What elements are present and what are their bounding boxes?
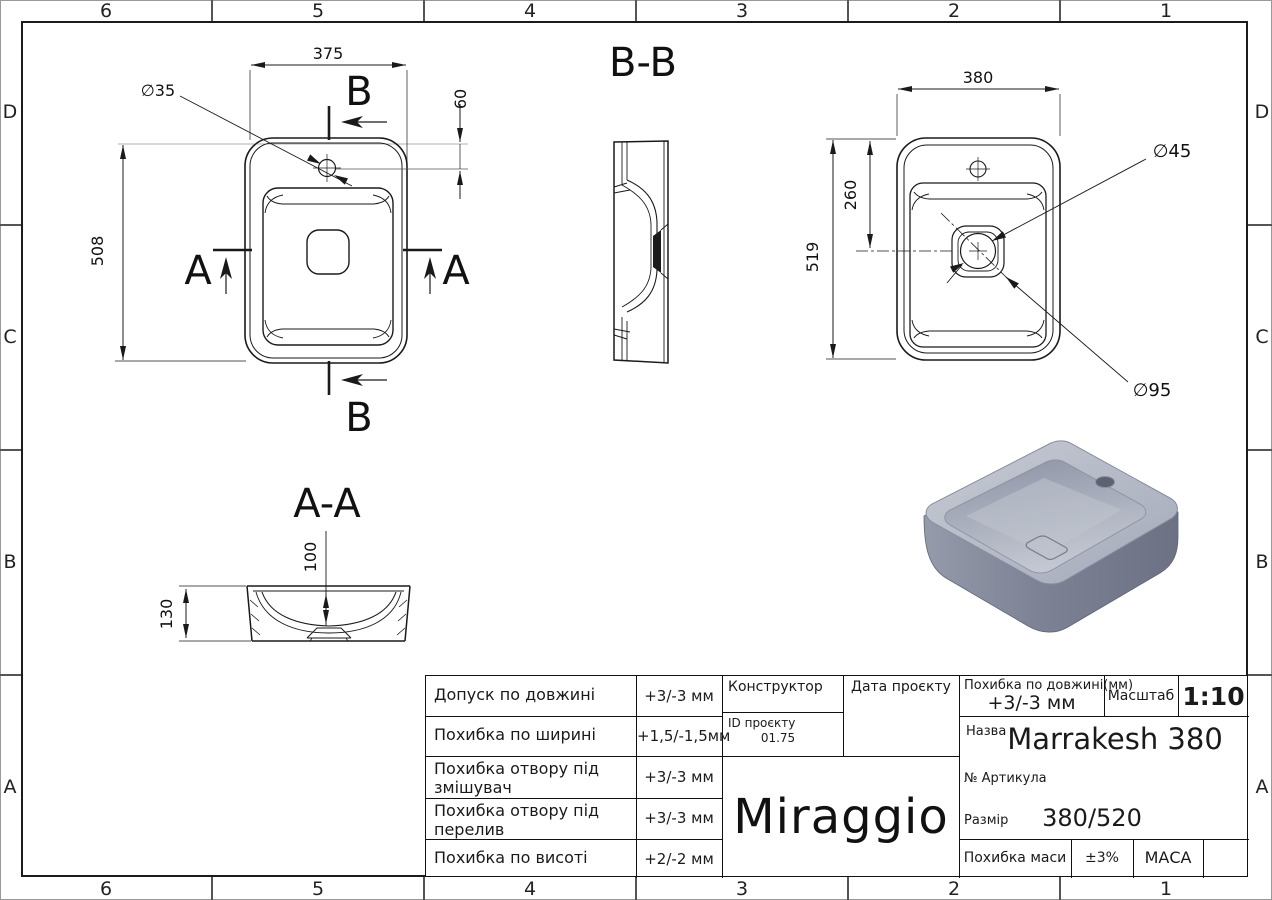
tb-line: [426, 839, 723, 840]
section-letter-b-top: B: [345, 69, 372, 115]
plan-outer-edge-inner: [250, 143, 402, 358]
tolerance-value: +3/-3 мм: [637, 768, 721, 786]
article-label: № Артикула: [964, 771, 1047, 786]
mass-label: МАСА: [1133, 848, 1203, 867]
render-faucet-hole: [1096, 477, 1115, 488]
mass-tolerance-value: ±3%: [1071, 850, 1133, 866]
section-letter-a-right: A: [442, 248, 470, 294]
tolerance-value: +2/-2 мм: [637, 850, 721, 868]
section-aa-view: [179, 531, 410, 641]
section-bb-view: [614, 141, 668, 363]
dim-text-recess-diameter: ∅95: [1133, 380, 1172, 401]
tb-line: [843, 676, 844, 756]
dim-text-drain-offset: 260: [841, 180, 860, 211]
scale-label: Масштаб: [1104, 688, 1178, 704]
tolerance-label: Похибка по висоті: [434, 848, 630, 867]
bb-drain-section: [653, 230, 661, 273]
dim-text-plan-height: 508: [88, 236, 107, 267]
tolerance-value: +1,5/-1,5мм: [637, 727, 721, 745]
bottom-view: [826, 89, 1146, 382]
dim-text-overall-height: 130: [157, 599, 176, 630]
bottom-corner: [912, 194, 929, 210]
aa-bowl-inner: [262, 592, 396, 626]
dim-text-drain-diameter: ∅45: [1153, 141, 1192, 162]
dim-bottom-height: [826, 139, 896, 359]
project-id-value: 01.75: [728, 731, 828, 745]
dim-text-bowl-depth: 100: [301, 542, 320, 573]
section-bb-title: B-B: [609, 40, 677, 86]
project-date-label: Дата проєкту: [851, 679, 951, 695]
mass-tolerance-label: Похибка маси: [959, 850, 1071, 866]
bottom-outer-edge-inner: [904, 145, 1053, 353]
bottom-corner: [912, 320, 929, 336]
tb-line: [426, 716, 723, 717]
tb-line: [722, 712, 844, 713]
section-aa-title: A-A: [293, 481, 361, 527]
bottom-corner: [1027, 320, 1044, 336]
section-letter-b-bottom: B: [345, 395, 372, 441]
tolerance-value: +3/-3 мм: [637, 809, 721, 827]
tb-line: [426, 798, 723, 799]
tb-line: [1203, 839, 1204, 878]
title-block: Допуск по довжині Похибка по ширині Похи…: [425, 675, 1248, 877]
plan-view: [115, 65, 468, 395]
tolerance-label: Похибка отвору під перелив: [434, 801, 630, 839]
scale-value: 1:10: [1178, 682, 1249, 711]
tolerance-value: +3/-3 мм: [637, 687, 721, 705]
leader-recess-diameter: [1006, 277, 1128, 382]
dim-text-bottom-height: 519: [803, 242, 822, 273]
plan-bowl-scoop-top: [267, 196, 389, 204]
name-value: Marrakesh 380: [981, 722, 1249, 756]
dim-text-bottom-width: 380: [963, 68, 994, 87]
tolerance-label: Похибка по ширині: [434, 725, 630, 744]
dim-text-plan-width: 375: [313, 44, 344, 63]
plan-drain: [307, 230, 349, 274]
bottom-scoop-top: [914, 192, 1042, 199]
tb-line: [959, 839, 1249, 840]
dim-plan-height: [115, 145, 246, 361]
bottom-bowl-footprint: [910, 183, 1046, 347]
section-letter-a-left: A: [184, 248, 212, 294]
project-id-label: ID проєкту: [728, 716, 795, 730]
tolerance-label: Допуск по довжині: [434, 685, 630, 704]
render-3d: [924, 441, 1178, 632]
tb-line: [959, 716, 1249, 717]
bottom-corner: [1027, 194, 1044, 210]
dim-overall-height: [179, 586, 251, 641]
size-value: 380/520: [1012, 804, 1172, 832]
bottom-scoop-bottom: [914, 331, 1042, 338]
plan-bowl-rim: [263, 188, 393, 345]
dim-bottom-width: [897, 89, 1060, 136]
brand-logo: Miraggio: [723, 756, 959, 878]
bottom-outer-edge: [897, 138, 1060, 360]
dim-text-faucet-offset: 60: [451, 89, 470, 109]
constructor-label: Конструктор: [728, 679, 823, 695]
size-label: Размір: [964, 813, 1008, 828]
dim-text-faucet-diameter: ∅35: [141, 81, 175, 100]
leader-faucet-diameter: [180, 96, 352, 186]
section-mark-b: [329, 106, 387, 395]
plan-bowl-scoop-bottom: [267, 329, 389, 337]
drawing-sheet: 6 5 4 3 2 1 6 5 4 3 2 1 D C B A D C B A: [0, 0, 1272, 900]
length-tolerance-value: +3/-3 мм: [959, 692, 1104, 714]
tolerance-label: Похибка отвору під змішувач: [434, 759, 630, 797]
